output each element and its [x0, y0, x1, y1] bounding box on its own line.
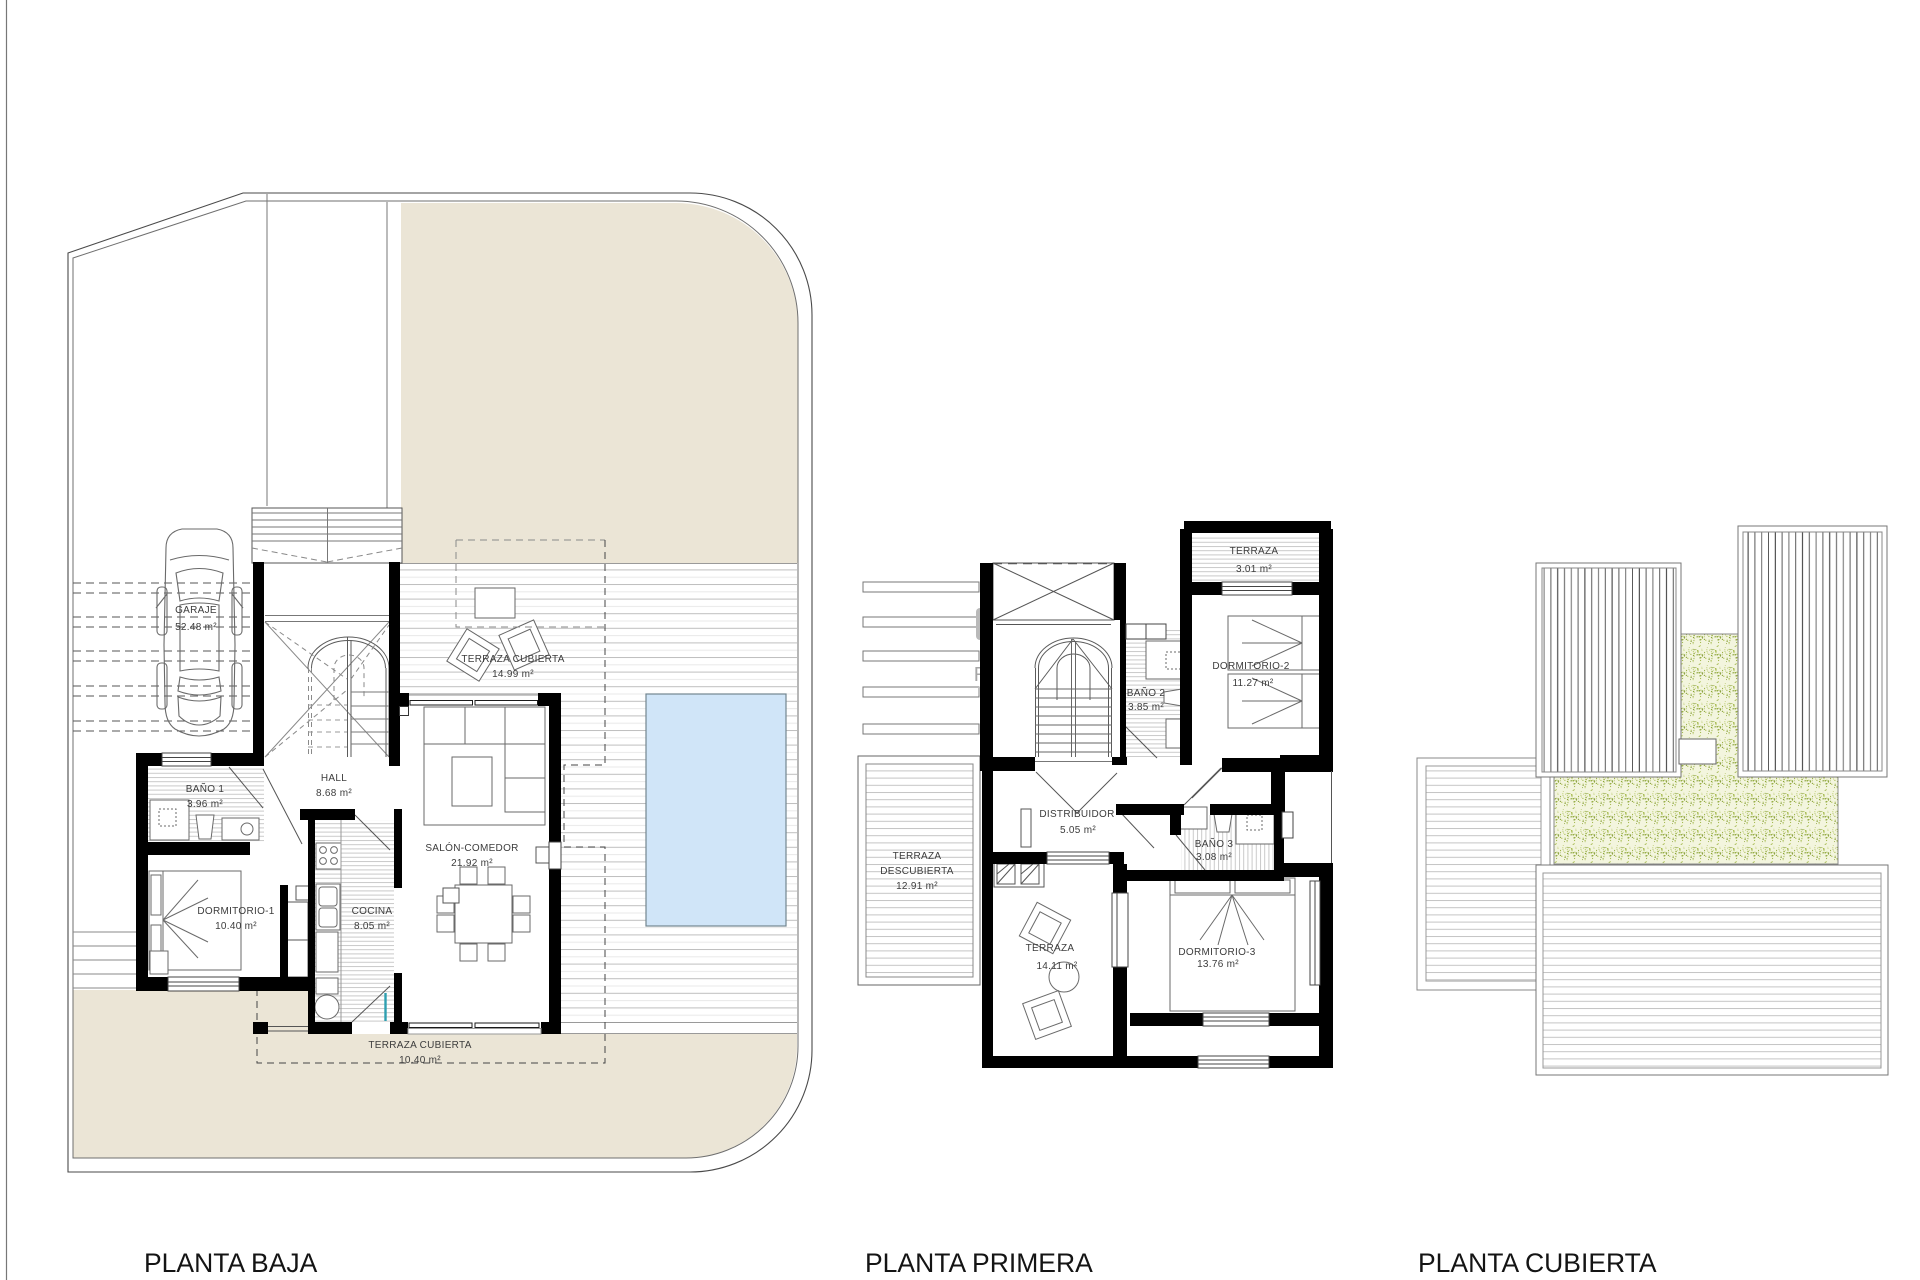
- svg-text:TERRAZA: TERRAZA: [1230, 546, 1279, 557]
- svg-text:3.01 m²: 3.01 m²: [1236, 564, 1272, 575]
- svg-text:5.05 m²: 5.05 m²: [1060, 825, 1096, 836]
- svg-text:GARAJE: GARAJE: [175, 605, 217, 616]
- svg-text:SALÓN-COMEDOR: SALÓN-COMEDOR: [425, 841, 518, 854]
- svg-text:DORMITORIO-2: DORMITORIO-2: [1212, 661, 1289, 672]
- svg-text:13.76 m²: 13.76 m²: [1197, 959, 1239, 970]
- svg-text:TERRAZA: TERRAZA: [1026, 943, 1075, 954]
- svg-text:TERRAZA CUBIERTA: TERRAZA CUBIERTA: [368, 1040, 471, 1051]
- svg-text:3.08 m²: 3.08 m²: [1196, 852, 1232, 863]
- svg-text:14.11 m²: 14.11 m²: [1036, 961, 1077, 972]
- svg-text:HALL: HALL: [321, 773, 347, 784]
- svg-text:10.40 m²: 10.40 m²: [399, 1055, 441, 1066]
- svg-text:DORMITORIO-1: DORMITORIO-1: [197, 906, 274, 917]
- svg-text:BAÑO 3: BAÑO 3: [1195, 837, 1234, 850]
- svg-text:PLANTA BAJA: PLANTA BAJA: [144, 1248, 318, 1278]
- svg-text:TERRAZA CUBIERTA: TERRAZA CUBIERTA: [461, 654, 564, 665]
- svg-text:11.27 m²: 11.27 m²: [1232, 678, 1273, 689]
- svg-text:COCINA: COCINA: [352, 906, 393, 917]
- svg-text:3.85 m²: 3.85 m²: [1128, 702, 1164, 713]
- svg-text:DISTRIBUIDOR: DISTRIBUIDOR: [1039, 809, 1114, 820]
- svg-text:12.91 m²: 12.91 m²: [896, 881, 938, 892]
- svg-text:21.92 m²: 21.92 m²: [451, 858, 493, 869]
- svg-text:8.05 m²: 8.05 m²: [354, 921, 390, 932]
- svg-text:10.40 m²: 10.40 m²: [215, 921, 257, 932]
- svg-text:52.48 m²: 52.48 m²: [175, 622, 217, 633]
- svg-text:BAÑO 2: BAÑO 2: [1127, 686, 1166, 699]
- svg-text:DESCUBIERTA: DESCUBIERTA: [880, 866, 954, 877]
- svg-text:PLANTA PRIMERA: PLANTA PRIMERA: [865, 1248, 1093, 1278]
- svg-text:3.96 m²: 3.96 m²: [187, 799, 223, 810]
- svg-text:14.99 m²: 14.99 m²: [492, 669, 534, 680]
- svg-text:DORMITORIO-3: DORMITORIO-3: [1178, 947, 1255, 958]
- svg-text:8.68 m²: 8.68 m²: [316, 788, 352, 799]
- svg-text:BAÑO 1: BAÑO 1: [186, 782, 225, 795]
- svg-text:PLANTA CUBIERTA: PLANTA CUBIERTA: [1418, 1248, 1657, 1278]
- svg-text:TERRAZA: TERRAZA: [893, 851, 942, 862]
